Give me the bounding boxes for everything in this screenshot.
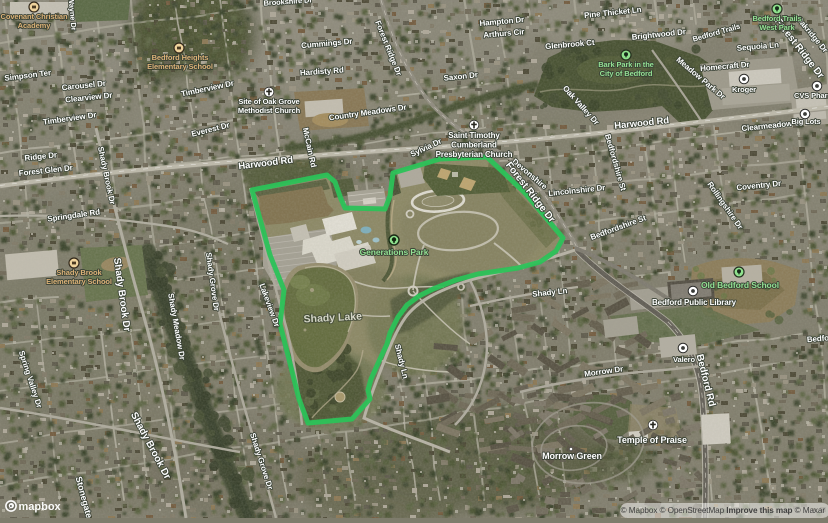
svg-text:© Mapbox © OpenStreetMap Impro: © Mapbox © OpenStreetMap Improve this ma… <box>621 506 826 515</box>
svg-text:Morrow Green: Morrow Green <box>542 451 602 461</box>
svg-text:Generations Park: Generations Park <box>360 247 429 257</box>
svg-text:Bedford: Bedford <box>806 333 828 345</box>
svg-text:mapbox: mapbox <box>19 501 62 513</box>
svg-text:Bark Park in theCity of Bedfor: Bark Park in theCity of Bedford <box>598 60 654 78</box>
svg-text:Temple of Praise: Temple of Praise <box>617 435 687 445</box>
svg-text:CVS Pharm: CVS Pharm <box>794 91 828 100</box>
svg-text:Bedford TrailsWest Park: Bedford TrailsWest Park <box>752 14 801 32</box>
svg-text:Bedford HeightsElementary Scho: Bedford HeightsElementary School <box>147 53 213 71</box>
svg-text:Bedford Public Library: Bedford Public Library <box>652 298 737 307</box>
svg-text:Valero: Valero <box>673 355 695 364</box>
svg-text:Site of Oak GroveMethodist Chu: Site of Oak GroveMethodist Church <box>238 97 301 115</box>
svg-text:Kroger: Kroger <box>732 85 756 94</box>
svg-text:Old Bedford School: Old Bedford School <box>701 280 779 290</box>
